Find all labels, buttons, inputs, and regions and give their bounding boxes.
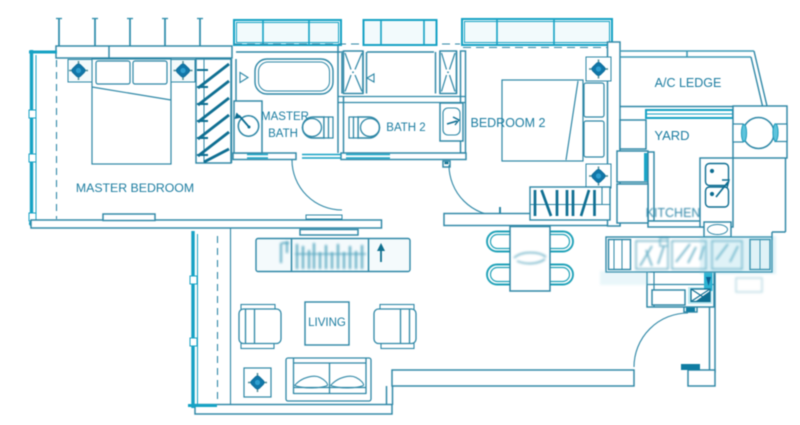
svg-text:MASTER: MASTER [261, 111, 309, 123]
svg-text:MASTER BEDROOM: MASTER BEDROOM [76, 181, 194, 195]
svg-text:BATH: BATH [268, 128, 298, 140]
svg-text:YARD: YARD [654, 128, 689, 143]
svg-text:KITCHEN: KITCHEN [646, 206, 701, 220]
svg-text:A/C LEDGE: A/C LEDGE [655, 76, 722, 90]
svg-text:BEDROOM 2: BEDROOM 2 [470, 116, 545, 130]
svg-text:BATH 2: BATH 2 [386, 122, 425, 134]
svg-text:LIVING: LIVING [308, 317, 346, 329]
